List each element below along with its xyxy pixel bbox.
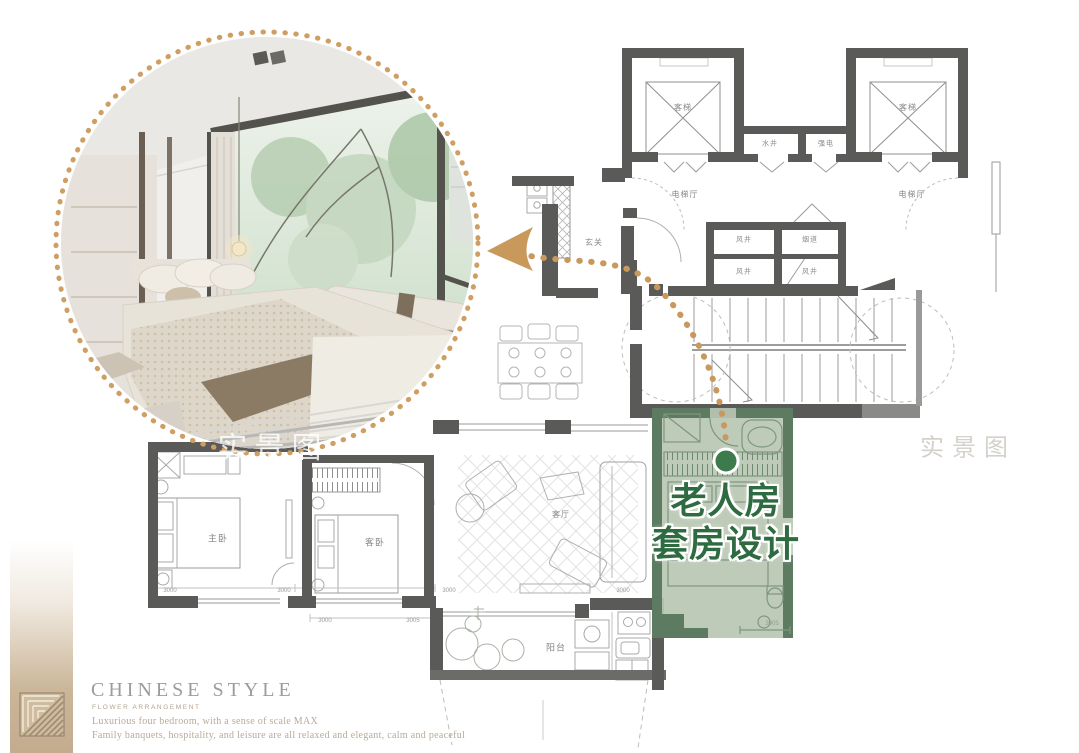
label-guest-bedroom: 客卧 xyxy=(365,539,385,548)
label-hall-right: 电梯厅 xyxy=(899,191,926,199)
photo-dotted-ring xyxy=(52,28,482,458)
brand-description-line2: Family banquets, hospitality, and leisur… xyxy=(92,730,465,741)
suite-callout-line1: 老人房 xyxy=(616,480,836,523)
label-master-bedroom: 主卧 xyxy=(208,535,228,544)
dimension-label: 3000 xyxy=(277,588,290,594)
label-strong-electric: 强电 xyxy=(818,141,834,148)
label-elevator-right: 客梯 xyxy=(899,104,917,112)
dimension-label: 3000 xyxy=(616,588,629,594)
dimension-label: 3005 xyxy=(406,618,419,624)
plan-watermark: 实景图 xyxy=(920,428,1016,463)
label-entry: 玄关 xyxy=(585,239,603,247)
brand-logo xyxy=(19,692,65,737)
suite-callout: 老人房 套房设计 xyxy=(616,480,836,566)
page: 客梯 客梯 水井 强电 电梯厅 电梯厅 风井 烟道 风井 风井 玄关 客厅 主卧… xyxy=(0,0,1079,753)
dimension-label: 3000 xyxy=(442,588,455,594)
bedroom-photo-circle xyxy=(52,28,482,458)
brand-title: CHINESE STYLE xyxy=(91,679,295,702)
arrowhead-icon xyxy=(487,227,533,271)
label-wind-shaft-c: 风井 xyxy=(802,269,818,276)
label-balcony: 阳台 xyxy=(546,644,566,653)
photo-watermark: 实景图 xyxy=(218,423,329,467)
label-flue: 烟道 xyxy=(802,237,818,244)
label-elevator-left: 客梯 xyxy=(674,104,692,112)
label-hall-left: 电梯厅 xyxy=(672,191,699,199)
dimension-label: 3000 xyxy=(318,618,331,624)
label-water-shaft: 水井 xyxy=(762,141,778,148)
brand-description-line1: Luxurious four bedroom, with a sense of … xyxy=(92,716,318,727)
suite-callout-line2: 套房设计 xyxy=(616,523,836,566)
brand-subtitle: FLOWER ARRANGEMENT xyxy=(92,704,201,711)
label-living: 客厅 xyxy=(552,511,570,519)
dimension-label: 3005 xyxy=(765,621,778,627)
dimension-label: 3000 xyxy=(163,588,176,594)
label-wind-shaft-b: 风井 xyxy=(736,269,752,276)
label-wind-shaft-a: 风井 xyxy=(736,237,752,244)
green-locator-dot xyxy=(714,449,738,473)
